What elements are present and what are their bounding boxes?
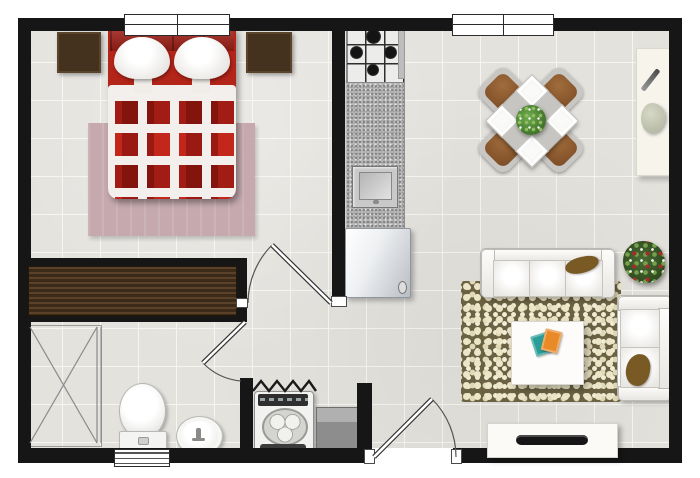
kitchen-faucet xyxy=(373,200,379,204)
centerpiece-plant xyxy=(516,105,546,135)
toilet-flush-button xyxy=(138,437,149,445)
wall-entry-side xyxy=(357,383,372,448)
double-bed xyxy=(108,27,236,199)
loveseat xyxy=(617,295,671,400)
coffee-table xyxy=(511,321,584,385)
book-orange xyxy=(541,328,563,353)
tv-stand xyxy=(487,423,618,458)
washer-drum xyxy=(262,408,308,446)
sink-basin xyxy=(359,172,392,200)
refrigerator xyxy=(345,228,411,298)
washing-machine xyxy=(254,391,314,455)
loveseat-cushion xyxy=(620,309,660,349)
living-window xyxy=(452,14,554,36)
stove-burner xyxy=(350,46,363,59)
bedroom-window xyxy=(124,14,230,36)
console-decor-item xyxy=(641,68,661,92)
bed-duvet-checkered xyxy=(108,85,236,199)
window-pane xyxy=(453,15,504,35)
shower xyxy=(28,325,102,447)
window-pane xyxy=(504,15,554,35)
wall-bathroom-right xyxy=(240,378,253,448)
door-jamb xyxy=(236,298,248,308)
sink-faucet-base xyxy=(192,438,205,441)
nightstand-right xyxy=(246,32,292,73)
door-jamb xyxy=(331,296,347,307)
wardrobe xyxy=(28,266,237,316)
fridge-handle xyxy=(398,281,407,294)
sofa-cushion xyxy=(493,260,531,297)
window-pane xyxy=(125,15,178,35)
laundry-cabinet xyxy=(316,407,362,453)
door-jamb xyxy=(451,449,462,464)
pillow-right xyxy=(174,37,230,79)
wall-right xyxy=(669,18,682,463)
floor-plan xyxy=(0,0,700,478)
sofa xyxy=(480,248,614,297)
stove-burner xyxy=(367,64,379,76)
washer-control-panel xyxy=(258,394,308,406)
stove-burner xyxy=(366,29,381,44)
wall-left xyxy=(18,18,31,463)
kitchen-sink xyxy=(352,166,398,208)
stove-burner xyxy=(384,46,397,59)
corner-plant xyxy=(623,241,665,283)
pillow-left xyxy=(114,37,170,79)
bathroom-window xyxy=(114,449,170,467)
dining-set xyxy=(482,71,580,169)
console-decor-stone xyxy=(641,103,665,133)
stove-knobs xyxy=(398,29,405,79)
window-pane xyxy=(178,15,230,35)
wall-top xyxy=(18,18,682,31)
bed-sheet-detail xyxy=(134,77,152,93)
door-jamb xyxy=(364,449,375,464)
wall-bottom-left xyxy=(18,448,372,463)
nightstand-left xyxy=(57,32,101,73)
wall-kitchen-divider xyxy=(332,31,345,305)
console-table xyxy=(636,48,670,176)
sofa-cushion xyxy=(529,260,567,297)
television xyxy=(516,435,588,445)
bed-sheet-detail xyxy=(192,77,210,93)
sofa-armrest xyxy=(601,249,615,298)
